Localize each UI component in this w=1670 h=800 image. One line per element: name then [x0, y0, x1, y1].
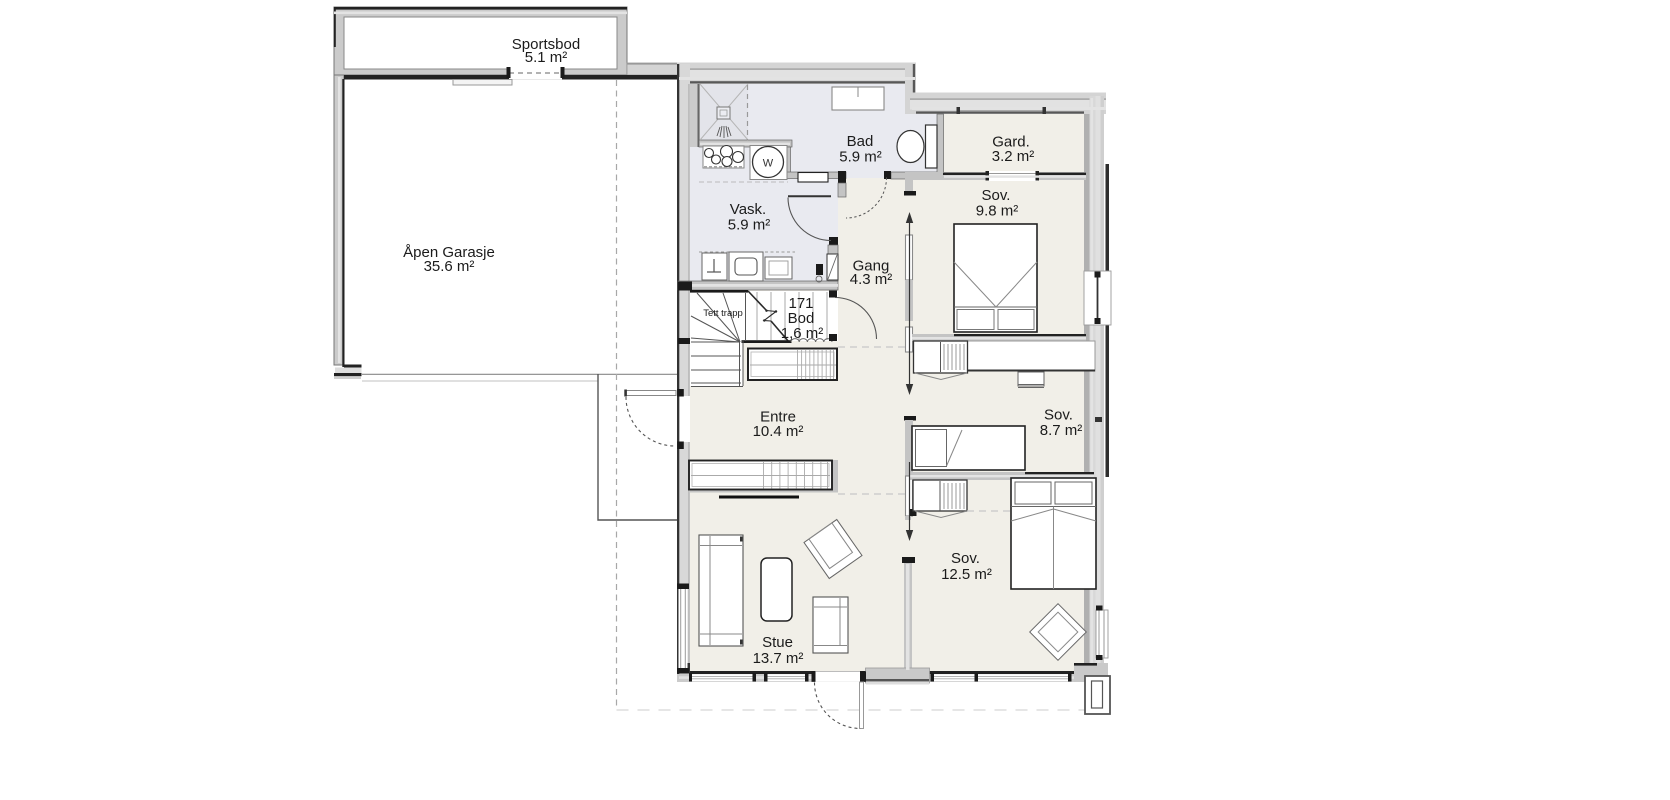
svg-text:5.9 m²: 5.9 m² [728, 217, 771, 234]
svg-text:3.2 m²: 3.2 m² [992, 148, 1035, 165]
svg-text:12.5 m²: 12.5 m² [941, 566, 992, 583]
svg-text:5.9 m²: 5.9 m² [839, 149, 882, 166]
svg-text:Sov.: Sov. [951, 550, 980, 567]
svg-text:W: W [763, 158, 774, 170]
svg-text:13.7 m²: 13.7 m² [753, 650, 804, 667]
svg-text:Vask.: Vask. [730, 201, 766, 218]
svg-text:9.8 m²: 9.8 m² [976, 203, 1019, 220]
svg-text:8.7 m²: 8.7 m² [1040, 422, 1083, 439]
svg-text:10.4 m²: 10.4 m² [753, 423, 804, 440]
svg-text:Stue: Stue [762, 634, 793, 651]
svg-text:Sov.: Sov. [982, 187, 1011, 204]
svg-text:5.1 m²: 5.1 m² [525, 49, 568, 66]
svg-text:35.6 m²: 35.6 m² [424, 258, 475, 275]
svg-text:Sov.: Sov. [1044, 407, 1073, 424]
svg-text:1,6 m²: 1,6 m² [781, 325, 824, 342]
svg-text:4.3 m²: 4.3 m² [850, 271, 893, 288]
svg-text:Tett trapp: Tett trapp [703, 308, 743, 319]
svg-text:Bad: Bad [847, 133, 874, 150]
